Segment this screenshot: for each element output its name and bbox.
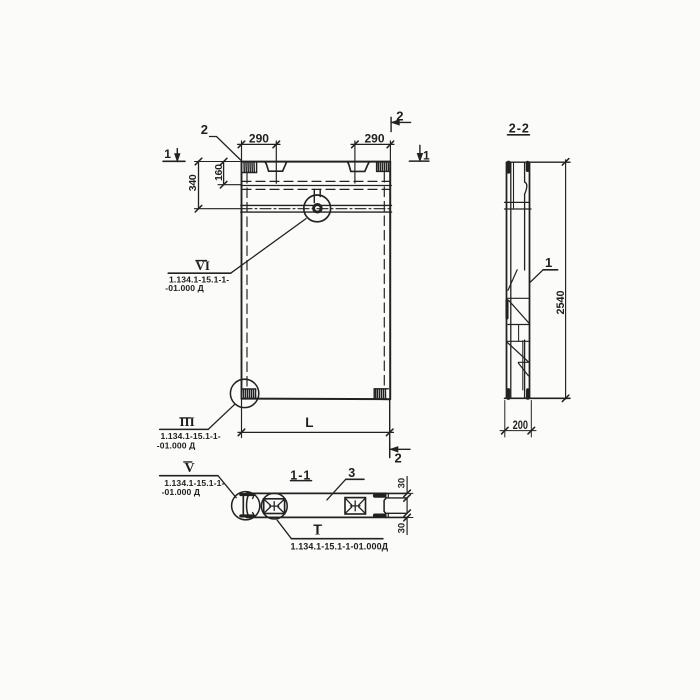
svg-text:-01.000 Д: -01.000 Д: [165, 283, 204, 293]
svg-text:-01.000 Д: -01.000 Д: [162, 487, 201, 497]
svg-text:290: 290: [365, 132, 385, 146]
svg-text:V: V: [185, 461, 195, 476]
svg-text:1.134.1-15.1-1-01.000Д: 1.134.1-15.1-1-01.000Д: [291, 542, 389, 552]
svg-text:1.134.1-15.1-1-: 1.134.1-15.1-1-: [161, 431, 221, 441]
svg-text:1: 1: [545, 255, 552, 270]
svg-text:2540: 2540: [555, 290, 567, 314]
svg-text:III: III: [180, 414, 195, 429]
svg-text:30: 30: [397, 478, 408, 489]
svg-text:2-2: 2-2: [509, 122, 530, 136]
svg-text:160: 160: [213, 164, 225, 181]
svg-text:-01.000 Д: -01.000 Д: [157, 441, 196, 451]
svg-text:3: 3: [348, 466, 355, 480]
svg-text:VI: VI: [196, 258, 210, 273]
svg-text:340: 340: [187, 174, 199, 191]
svg-text:2: 2: [201, 122, 208, 137]
svg-text:2: 2: [396, 109, 403, 124]
svg-text:1: 1: [164, 147, 171, 161]
svg-text:290: 290: [249, 132, 269, 146]
svg-text:2: 2: [395, 450, 402, 465]
svg-text:L: L: [305, 415, 313, 430]
svg-text:30: 30: [397, 523, 408, 534]
svg-text:200: 200: [513, 420, 529, 432]
svg-text:1-1: 1-1: [290, 469, 311, 483]
svg-text:1: 1: [423, 148, 430, 162]
svg-text:I: I: [315, 524, 320, 539]
